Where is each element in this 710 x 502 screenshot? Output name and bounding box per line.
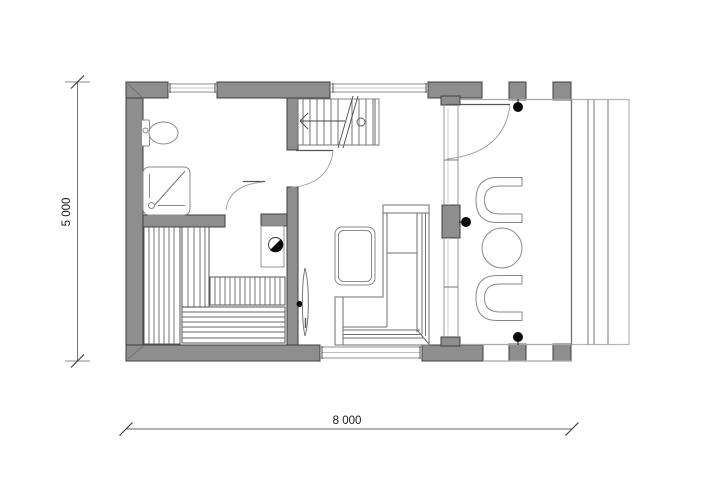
sauna-stove xyxy=(261,226,284,267)
sauna-bench-mid xyxy=(182,227,209,307)
sauna-bench-lower xyxy=(182,307,285,343)
stair-side-wall xyxy=(287,98,298,150)
floor-plan-drawing: 5 000 8 000 xyxy=(0,0,710,502)
post-dot-bottom xyxy=(514,333,523,342)
glass-wall-post xyxy=(442,205,460,238)
top-wall-right-bump xyxy=(441,96,460,105)
shower-tray xyxy=(143,167,190,215)
width-dimension-label: 8 000 xyxy=(333,415,362,427)
stair-treads xyxy=(303,99,373,145)
post-dot-top xyxy=(514,103,523,112)
left-wall xyxy=(126,82,143,361)
stair-newel-post xyxy=(357,118,365,126)
stair-break-line xyxy=(338,96,358,148)
hall-door xyxy=(291,151,333,188)
bottom-wall-left xyxy=(126,345,320,361)
dimension-left: 5 000 xyxy=(61,76,90,368)
shower-drain xyxy=(149,203,155,209)
post-dot-mid xyxy=(462,218,471,227)
terrace-round-table xyxy=(482,228,522,268)
porch-column-bottom-right xyxy=(553,344,571,361)
top-wall-left xyxy=(126,82,168,98)
terrace-deck xyxy=(460,100,629,362)
height-dimension-label: 5 000 xyxy=(61,198,73,227)
top-wall-mid xyxy=(217,82,330,98)
dimension-bottom: 8 000 xyxy=(120,415,579,436)
staircase xyxy=(298,96,379,148)
window-bathroom xyxy=(168,83,217,93)
terrace-chair-bottom xyxy=(476,276,522,321)
porch-column-top-right xyxy=(553,82,571,100)
sauna-side-wall xyxy=(287,187,298,345)
window-living-bottom xyxy=(320,346,422,359)
porch-column-bottom-mid xyxy=(509,344,526,361)
sauna xyxy=(144,226,285,344)
bottom-wall-right xyxy=(422,345,483,361)
bath-sauna-wall xyxy=(143,215,225,227)
entrance-door xyxy=(446,105,510,160)
porch-furniture xyxy=(476,178,522,321)
coffee-table xyxy=(335,227,375,285)
bottom-wall-right-bump xyxy=(441,337,460,346)
terrace-chair-top xyxy=(476,178,522,223)
toilet xyxy=(142,120,179,146)
sauna-bench-left xyxy=(144,227,180,344)
window-living-top xyxy=(330,83,428,93)
sauna-bench-upper xyxy=(210,277,285,305)
floor-plan-canvas: 5 000 8 000 xyxy=(0,0,710,502)
porch-column-top-mid xyxy=(509,82,526,100)
bathroom-door xyxy=(226,182,265,211)
